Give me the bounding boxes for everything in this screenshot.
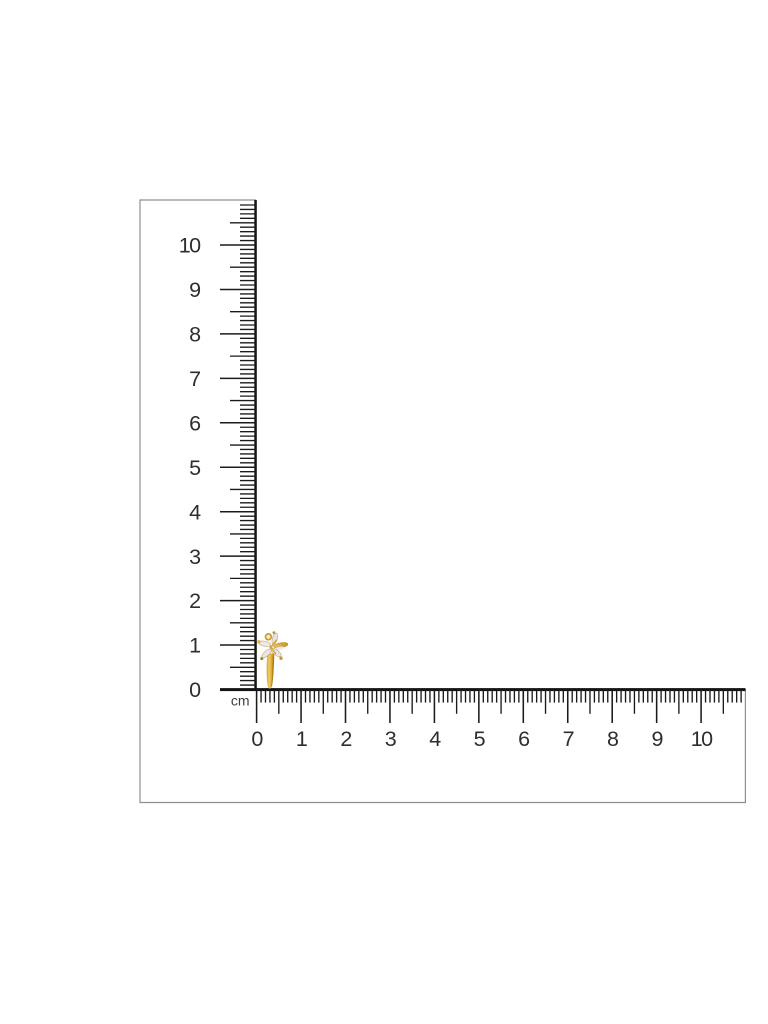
svg-text:0: 0 <box>189 678 201 702</box>
svg-text:7: 7 <box>563 727 574 751</box>
svg-text:7: 7 <box>189 367 200 391</box>
svg-text:1: 1 <box>296 727 307 751</box>
svg-text:10: 10 <box>179 234 201 258</box>
svg-text:3: 3 <box>385 727 397 751</box>
svg-text:5: 5 <box>474 727 486 751</box>
svg-text:0: 0 <box>251 727 263 751</box>
svg-text:3: 3 <box>189 545 201 569</box>
svg-text:4: 4 <box>189 500 201 524</box>
svg-text:5: 5 <box>189 456 201 480</box>
svg-text:cm: cm <box>231 692 250 708</box>
svg-text:8: 8 <box>189 323 201 347</box>
svg-text:6: 6 <box>518 727 530 751</box>
svg-text:8: 8 <box>607 727 619 751</box>
svg-text:6: 6 <box>189 411 201 435</box>
svg-text:10: 10 <box>691 727 713 751</box>
svg-text:9: 9 <box>189 278 200 302</box>
svg-text:2: 2 <box>340 727 351 751</box>
svg-text:1: 1 <box>189 634 200 658</box>
svg-text:4: 4 <box>429 727 441 751</box>
svg-text:9: 9 <box>651 727 662 751</box>
svg-text:2: 2 <box>189 589 200 613</box>
